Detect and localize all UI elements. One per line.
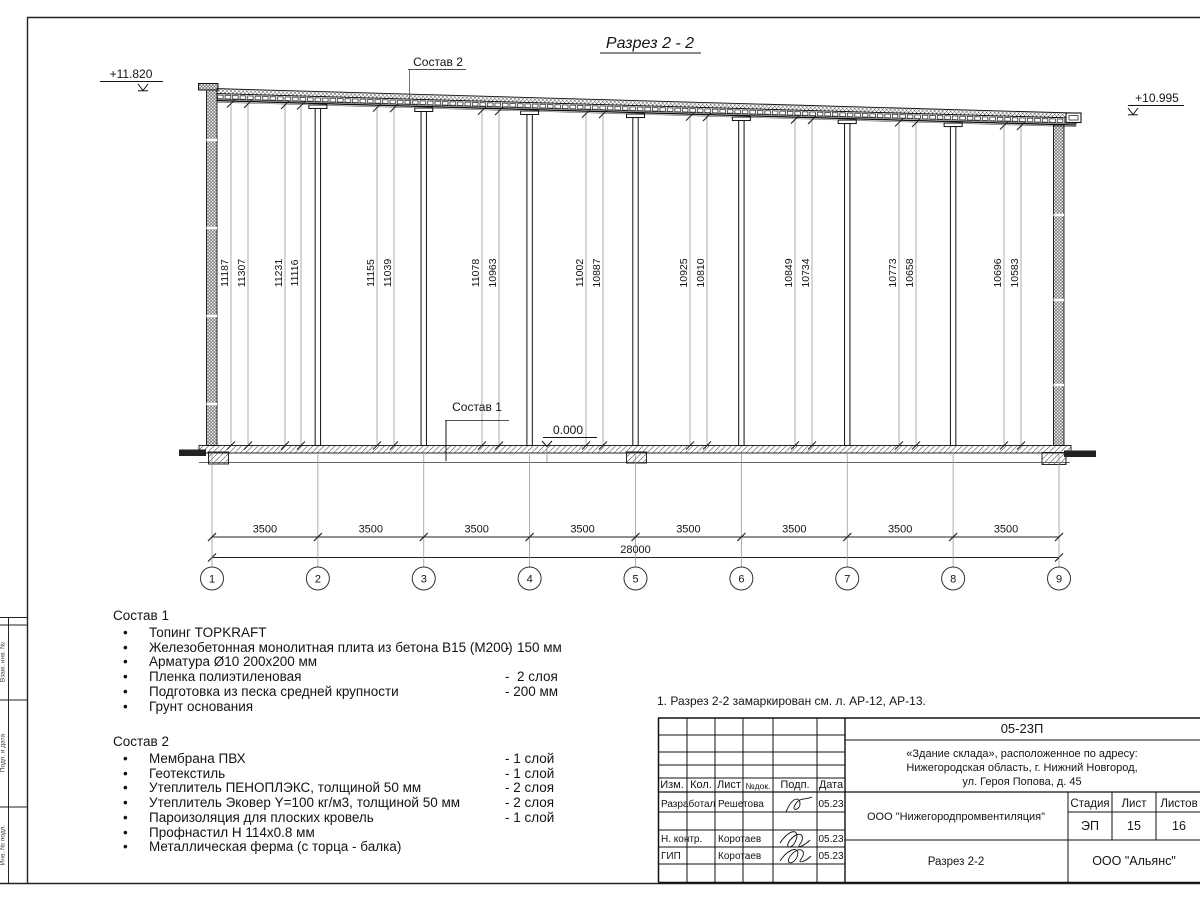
- material-item: •Утеплитель Эковер Y=100 кг/м3, толщиной…: [113, 796, 593, 811]
- row-nkontr-name: Коротаев: [718, 834, 761, 845]
- height-dimension-label: 10773: [887, 258, 899, 287]
- left-wall: [199, 84, 219, 446]
- frame-label-podp: Подп. и дата: [0, 733, 7, 772]
- project-name-line3: ул. Героя Попова, д. 45: [962, 776, 1081, 788]
- column-capital: [415, 108, 433, 112]
- col-data: Дата: [819, 779, 844, 791]
- material-quantity: - 1 слой: [505, 767, 554, 782]
- contractor-name: ООО "Альянс": [1092, 854, 1176, 868]
- column: [527, 115, 532, 446]
- bullet-icon: •: [123, 641, 128, 656]
- row-gip-role: ГИП: [661, 851, 681, 862]
- height-dimension-label: 10658: [904, 258, 916, 287]
- axis-number: 8: [950, 574, 956, 586]
- material-name: Профнастил Н 114х0.8 мм: [149, 825, 315, 840]
- column-capital: [732, 117, 750, 121]
- axis-number: 2: [315, 574, 321, 586]
- bullet-icon: •: [123, 796, 128, 811]
- height-dimension-label: 11002: [574, 259, 586, 288]
- material-item: •Пленка полиэтиленовая- 2 слоя: [113, 670, 593, 685]
- material-name: Грунт основания: [149, 699, 253, 714]
- sheets-label: Листов: [1160, 798, 1197, 810]
- sostav2-leader-label: Состав 2: [413, 55, 463, 69]
- sheet-value: 15: [1127, 819, 1141, 833]
- total-dimension-label: 28000: [620, 544, 651, 556]
- row-nkontr-date: 05.23: [818, 834, 843, 845]
- foundation-axis9: [1042, 453, 1066, 465]
- signature-gip: [780, 850, 811, 863]
- material-quantity: - 1 слой: [505, 811, 554, 826]
- bullet-icon: •: [123, 626, 128, 641]
- bay-dimension-label: 3500: [888, 524, 912, 536]
- column: [633, 118, 638, 446]
- bullet-icon: •: [123, 670, 128, 685]
- column-capital: [627, 114, 645, 118]
- height-dimension-label: 11187: [219, 259, 231, 287]
- bay-dimension-label: 3500: [994, 524, 1018, 536]
- drawing-sheet: Взам. инв. № Подп. и дата Инв. № подл. Р…: [0, 0, 1200, 900]
- sostav2-list: Состав 2•Мембрана ПВХ- 1 слой•Геотекстил…: [113, 734, 593, 855]
- bullet-icon: •: [123, 655, 128, 670]
- view-title-text: Разрез 2 - 2: [606, 35, 694, 52]
- foundation-axis1: [209, 452, 229, 464]
- height-dimension-label: 10734: [800, 258, 812, 287]
- material-quantity: - 2 слоя: [505, 796, 554, 811]
- material-item: •Арматура Ø10 200х200 мм: [113, 655, 593, 670]
- right-wall: [1054, 125, 1065, 446]
- height-dimension-label: 11307: [236, 259, 248, 288]
- material-name: Топинг TOPKRAFT: [149, 625, 266, 640]
- bullet-icon: •: [123, 781, 128, 796]
- doc-number: 05-23П: [1001, 721, 1044, 736]
- material-name: Пароизоляция для плоских кровель: [149, 810, 374, 825]
- elevation-right-value: +10.995: [1135, 91, 1179, 105]
- height-dimension-label: 10583: [1009, 258, 1021, 287]
- material-item: •Мембрана ПВХ- 1 слой: [113, 752, 593, 767]
- material-item: •Геотекстиль- 1 слой: [113, 767, 593, 782]
- roof: [217, 89, 1077, 127]
- column: [950, 127, 955, 446]
- sheet-label: Лист: [1122, 798, 1148, 810]
- column: [421, 111, 426, 445]
- roof-end-plate: [1066, 113, 1081, 123]
- material-item: •Подготовка из песка средней крупности- …: [113, 685, 593, 700]
- height-dimension-label: 11231: [273, 259, 285, 288]
- signature-nkontr: [780, 832, 810, 847]
- column: [315, 108, 320, 445]
- elevation-left-value: +11.820: [110, 67, 153, 81]
- material-item: •Пароизоляция для плоских кровель- 1 сло…: [113, 811, 593, 826]
- material-item: •Железобетонная монолитная плита из бето…: [113, 641, 593, 656]
- height-dimension-label: 10696: [992, 258, 1004, 287]
- elevation-mark-right: +10.995: [1128, 91, 1184, 115]
- bullet-icon: •: [123, 767, 128, 782]
- bay-dimension-label: 3500: [676, 524, 700, 536]
- col-ndok: №док.: [746, 781, 771, 791]
- axis-number: 3: [421, 574, 427, 586]
- col-list: Лист: [717, 779, 741, 791]
- height-dimension-label: 11116: [289, 259, 301, 286]
- columns: [309, 105, 962, 446]
- height-dimension-label: 11155: [365, 259, 377, 287]
- ground-beam-left: [179, 450, 206, 457]
- material-name: Пленка полиэтиленовая: [149, 669, 301, 684]
- material-name: Утеплитель Эковер Y=100 кг/м3, толщиной …: [149, 795, 460, 810]
- column: [739, 121, 744, 446]
- stage-label: Стадия: [1070, 798, 1109, 810]
- bullet-icon: •: [123, 700, 128, 715]
- height-dimension-label: 10887: [591, 258, 603, 287]
- elevation-zero-value: 0.000: [553, 423, 583, 437]
- bullet-icon: •: [123, 826, 128, 841]
- project-name-line1: «Здание склада», расположенное по адресу…: [906, 748, 1137, 760]
- bay-dimension-label: 3500: [359, 524, 383, 536]
- axis-number: 7: [844, 574, 850, 586]
- elevation-mark-left: +11.820: [100, 67, 163, 91]
- material-name: Железобетонная монолитная плита из бетон…: [149, 640, 513, 655]
- height-dimension-label: 10849: [783, 258, 795, 287]
- material-name: Утеплитель ПЕНОПЛЭКС, толщиной 50 мм: [149, 780, 421, 795]
- bay-dimension-label: 3500: [570, 524, 594, 536]
- frame-label-inv: Инв. № подл.: [0, 825, 7, 866]
- material-quantity: - 2 слоя: [505, 781, 554, 796]
- material-quantity: - 150 мм: [505, 641, 562, 656]
- stage-value: ЭП: [1081, 819, 1099, 833]
- bullet-icon: •: [123, 685, 128, 700]
- col-kol: Кол.: [690, 779, 712, 791]
- material-name: Металлическая ферма (с торца - балка): [149, 839, 401, 854]
- axis-number: 9: [1056, 574, 1062, 586]
- sostav2-title: Состав 2: [113, 734, 593, 749]
- ground-beam-right: [1064, 451, 1096, 458]
- material-item: •Грунт основания: [113, 700, 593, 715]
- org-name: ООО "Нижегородпромвентиляция": [867, 811, 1045, 823]
- height-dimension-label: 11078: [470, 259, 482, 288]
- title-block: 05-23П «Здание склада», расположенное по…: [658, 718, 1200, 883]
- section-name: Разрез 2-2: [928, 856, 984, 868]
- frame-label-vzam: Взам. инв. №: [0, 642, 7, 682]
- bay-dimension-label: 3500: [782, 524, 806, 536]
- column-capital: [309, 105, 327, 109]
- row-nkontr-role: Н. контр.: [661, 834, 702, 845]
- column-capital: [838, 120, 856, 124]
- axis-number: 5: [632, 574, 638, 586]
- material-item: •Профнастил Н 114х0.8 мм: [113, 826, 593, 841]
- material-name: Подготовка из песка средней крупности: [149, 684, 399, 699]
- axis-number: 4: [527, 574, 533, 586]
- material-item: •Утеплитель ПЕНОПЛЭКС, толщиной 50 мм- 2…: [113, 781, 593, 796]
- material-item: •Металлическая ферма (с торца - балка): [113, 840, 593, 855]
- height-dimensions: 1118711307112311111611155110391107810963…: [219, 99, 1025, 449]
- row-razrabotal-role: Разработал: [661, 798, 716, 810]
- bullet-icon: •: [123, 752, 128, 767]
- height-dimension-label: 10963: [487, 258, 499, 287]
- axis-number: 1: [209, 574, 215, 586]
- bullet-icon: •: [123, 840, 128, 855]
- signature-razrabotal: [786, 797, 812, 812]
- axis-grid-and-dimensions: 1350023500335004350053500635007350083500…: [201, 453, 1071, 590]
- bullet-icon: •: [123, 811, 128, 826]
- view-title: Разрез 2 - 2: [600, 35, 701, 53]
- material-quantity: - 2 слоя: [505, 670, 558, 685]
- row-gip-date: 05.23: [818, 851, 843, 862]
- material-item: •Топинг TOPKRAFT: [113, 626, 593, 641]
- project-name-line2: Нижегородская область, г. Нижний Новгоро…: [906, 762, 1137, 774]
- height-dimension-label: 10810: [695, 258, 707, 287]
- material-quantity: - 200 мм: [505, 685, 558, 700]
- axis-number: 6: [738, 574, 744, 586]
- sheets-value: 16: [1172, 819, 1186, 833]
- col-podp: Подп.: [780, 779, 809, 791]
- material-name: Геотекстиль: [149, 766, 225, 781]
- material-name: Арматура Ø10 200х200 мм: [149, 654, 317, 669]
- height-dimension-label: 11039: [382, 259, 394, 288]
- height-dimension-label: 10925: [678, 258, 690, 287]
- sostav1-list: Состав 1•Топинг TOPKRAFT•Железобетонная …: [113, 608, 593, 714]
- foundation-axis5: [627, 452, 647, 463]
- material-name: Мембрана ПВХ: [149, 751, 246, 766]
- row-gip-name: Коротаев: [718, 851, 761, 862]
- sostav1-title: Состав 1: [113, 608, 593, 623]
- row-razrabotal-name: Решетова: [718, 799, 764, 810]
- column-capital: [521, 111, 539, 115]
- material-quantity: - 1 слой: [505, 752, 554, 767]
- row-razrabotal-date: 05.23: [818, 799, 843, 810]
- bay-dimension-label: 3500: [464, 524, 488, 536]
- col-izm: Изм.: [660, 779, 684, 791]
- note-text: 1. Разрез 2-2 замаркирован см. л. АР-12,…: [657, 694, 926, 708]
- bay-dimension-label: 3500: [253, 524, 277, 536]
- sostav1-leader-label: Состав 1: [452, 400, 502, 414]
- column-capital: [944, 123, 962, 127]
- column: [845, 124, 850, 446]
